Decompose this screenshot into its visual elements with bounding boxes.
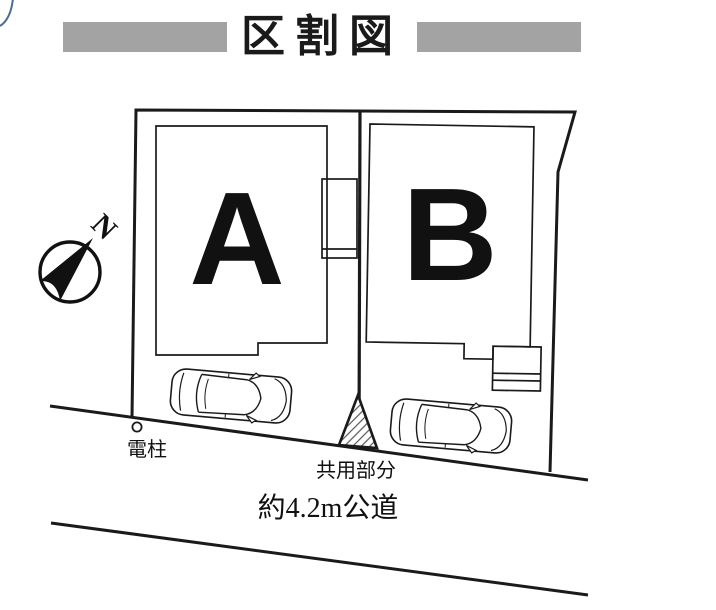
- utility-pole-icon: [132, 422, 141, 431]
- shared-area-label: 共用部分: [316, 459, 396, 482]
- car-icon-a: [169, 366, 293, 426]
- road-label: 約4.2m公道: [258, 492, 399, 524]
- road-edge-lower: [51, 523, 588, 595]
- plot-a-label: A: [189, 165, 284, 312]
- plot-division-page: 区割図: [0, 0, 716, 610]
- shared-area-marker: [339, 395, 377, 448]
- utility-pole-label: 電柱: [127, 438, 167, 461]
- compass-north-icon: N: [40, 208, 124, 302]
- car-icon-b: [389, 396, 513, 456]
- corner-accent-arc: [0, 0, 13, 26]
- plot-b-label: B: [402, 161, 497, 308]
- site-plan-drawing: A B N 電柱 共用部分 約4.2m公道: [0, 0, 716, 610]
